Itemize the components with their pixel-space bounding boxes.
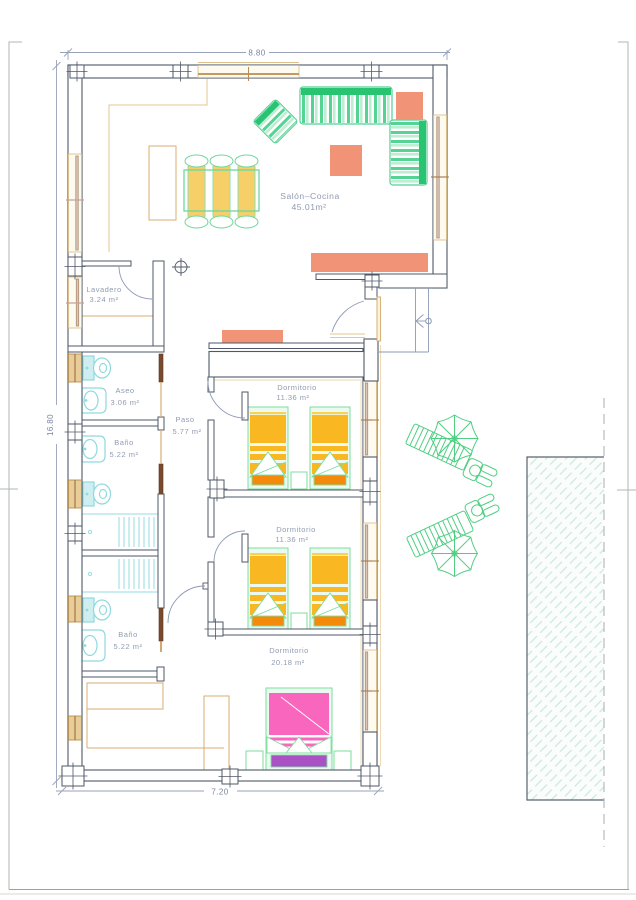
svg-text:Aseo: Aseo — [115, 386, 134, 395]
svg-text:Dormitorio: Dormitorio — [277, 383, 317, 392]
svg-text:Lavadero: Lavadero — [86, 285, 121, 294]
svg-text:45.01m²: 45.01m² — [291, 202, 326, 212]
svg-text:5.77 m²: 5.77 m² — [173, 427, 202, 436]
svg-text:Salón–Cocina: Salón–Cocina — [280, 191, 340, 201]
svg-text:Baño: Baño — [118, 630, 138, 639]
svg-text:16.80: 16.80 — [46, 414, 55, 436]
svg-text:Dormitorio: Dormitorio — [269, 646, 309, 655]
svg-text:7.20: 7.20 — [211, 788, 228, 797]
svg-text:11.36 m²: 11.36 m² — [276, 393, 309, 402]
svg-text:3.24 m²: 3.24 m² — [90, 295, 119, 304]
svg-text:3.06 m²: 3.06 m² — [111, 398, 140, 407]
svg-text:Paso: Paso — [175, 415, 194, 424]
svg-text:5.22 m²: 5.22 m² — [114, 642, 143, 651]
svg-text:Baño: Baño — [114, 438, 134, 447]
svg-text:8.80: 8.80 — [248, 49, 265, 58]
svg-text:20.18 m²: 20.18 m² — [271, 658, 305, 667]
svg-text:Dormitorio: Dormitorio — [276, 525, 316, 534]
svg-text:5.22 m²: 5.22 m² — [110, 450, 139, 459]
svg-text:11.36 m²: 11.36 m² — [275, 535, 308, 544]
